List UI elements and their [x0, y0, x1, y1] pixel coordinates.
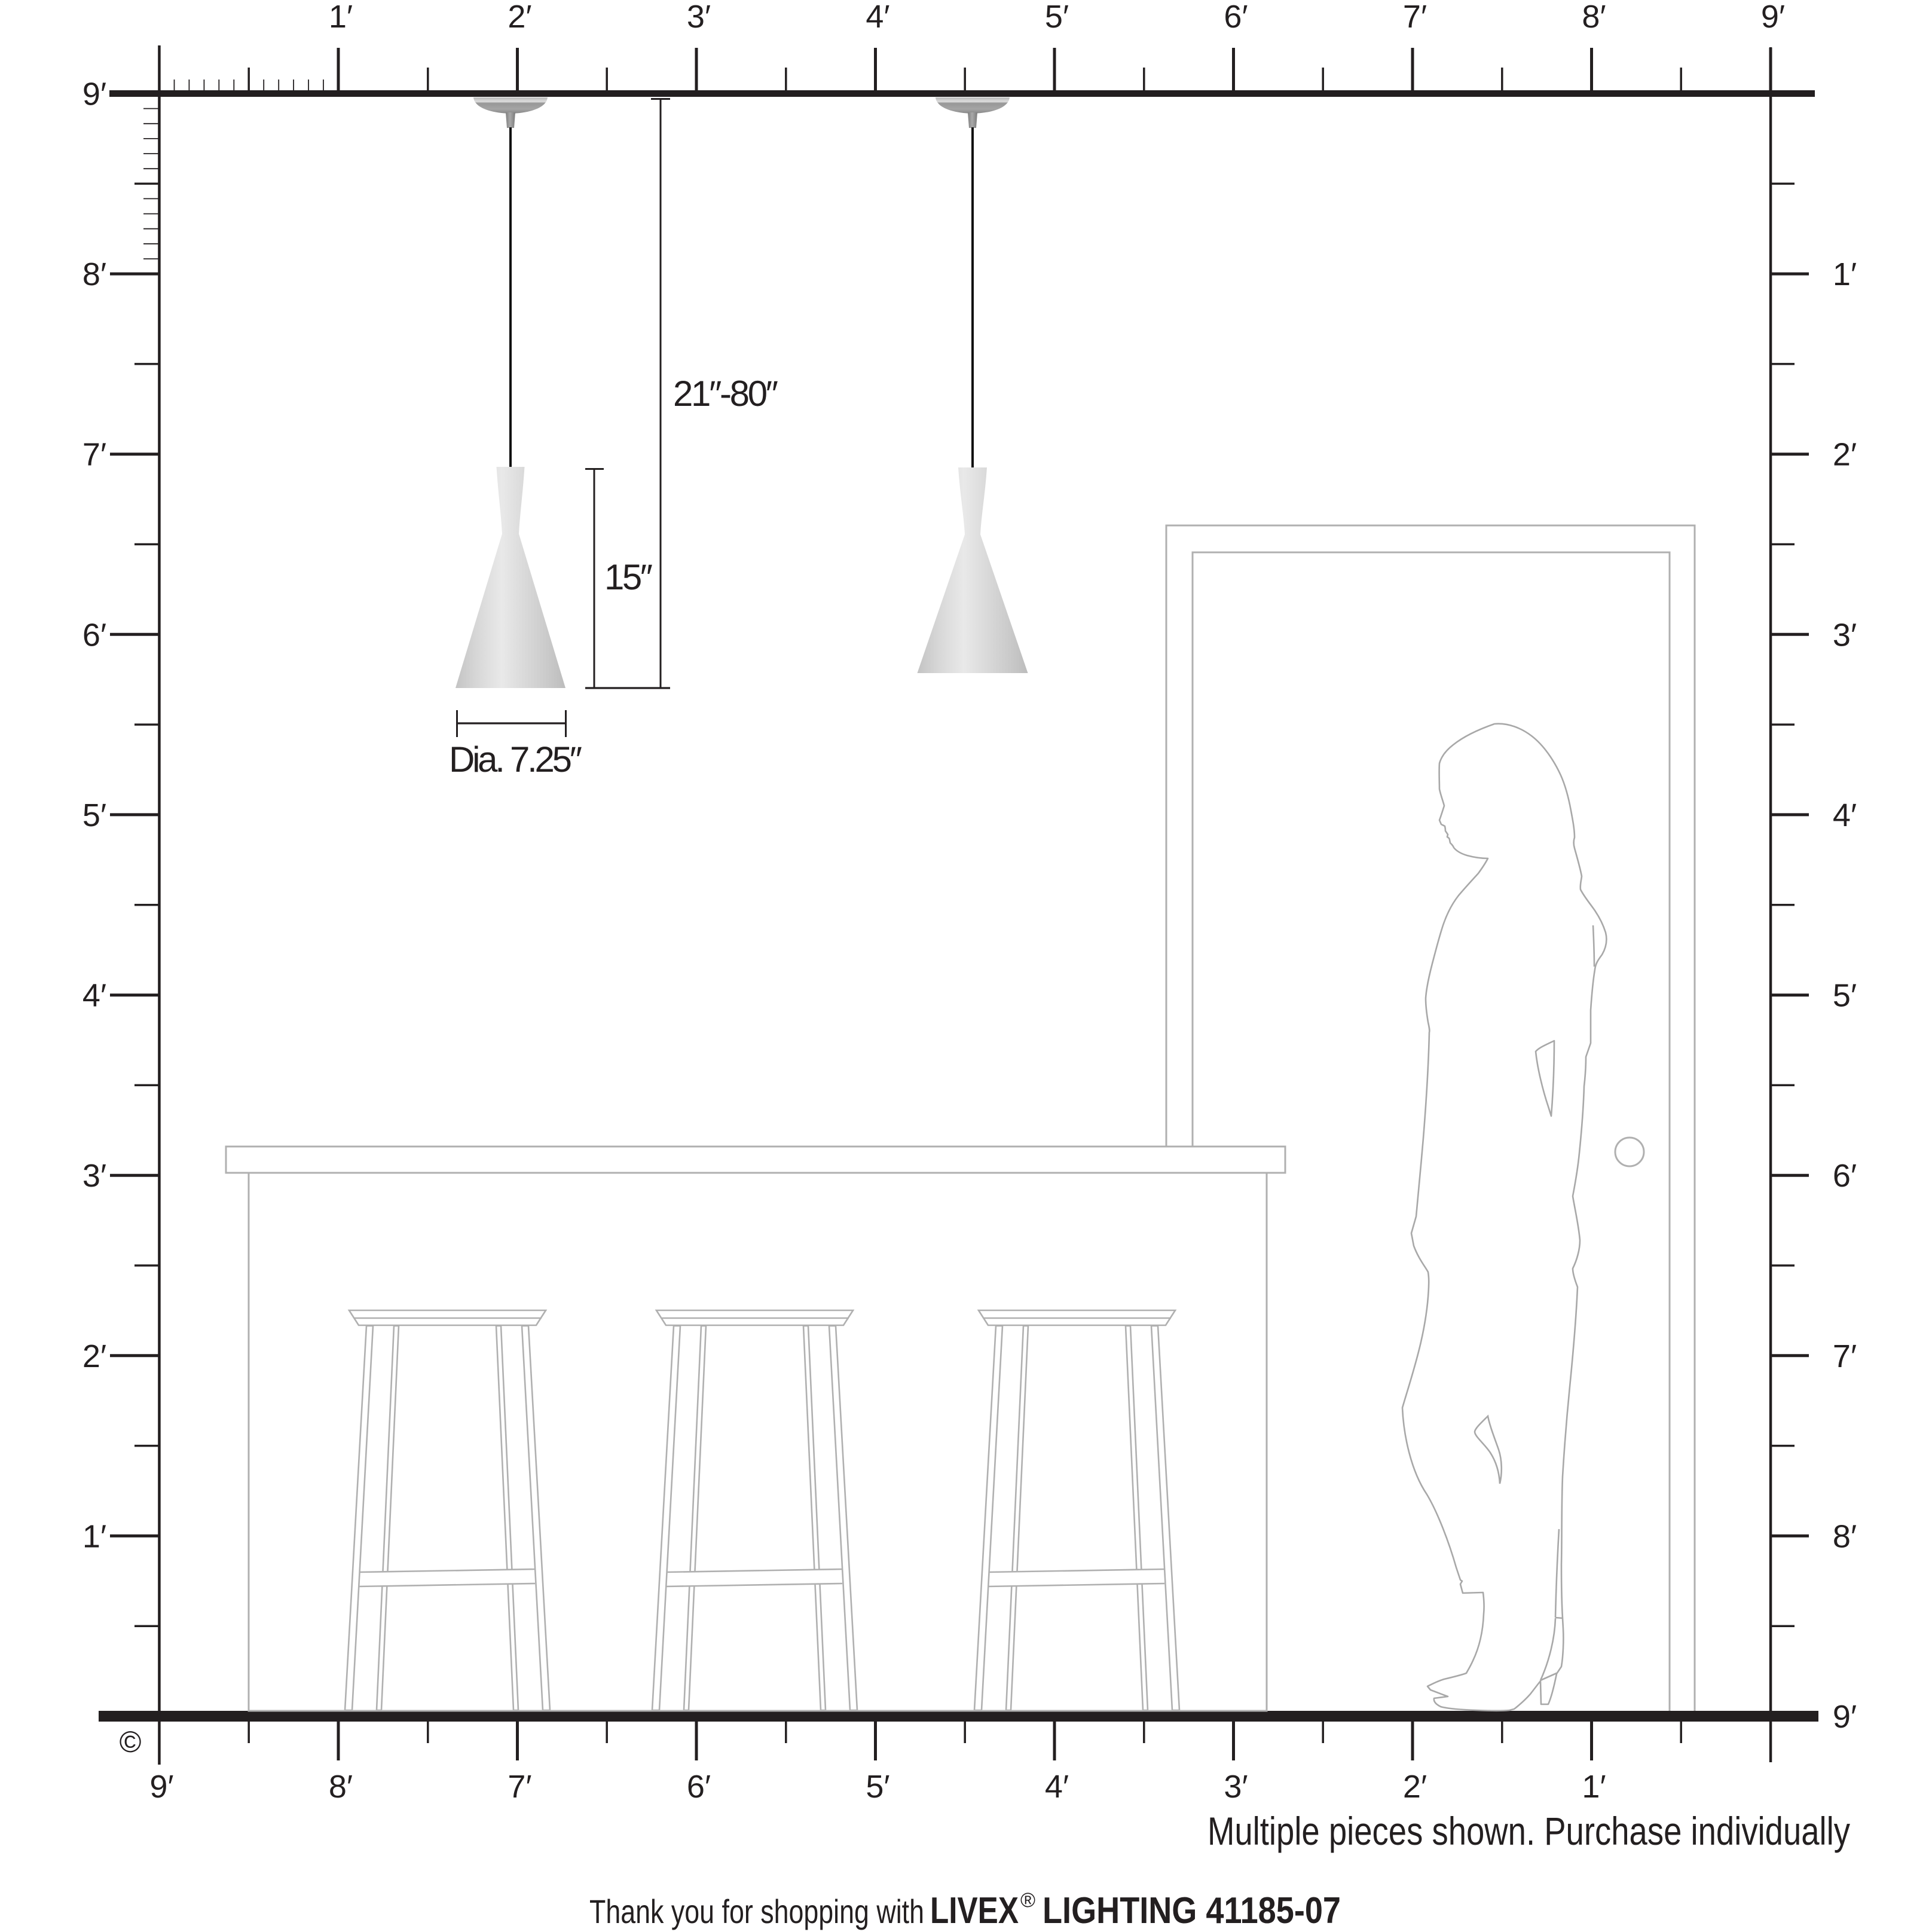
- svg-text:7′: 7′: [1833, 1338, 1857, 1374]
- svg-text:LIGHTING 41185-07: LIGHTING 41185-07: [1043, 1890, 1341, 1931]
- svg-text:5′: 5′: [1045, 0, 1069, 35]
- svg-text:©: ©: [120, 1725, 142, 1759]
- svg-text:1′: 1′: [1833, 256, 1857, 292]
- svg-text:®: ®: [1020, 1889, 1035, 1912]
- svg-text:21″-80″: 21″-80″: [673, 374, 778, 414]
- svg-text:3′: 3′: [1833, 617, 1857, 653]
- svg-text:9′: 9′: [1833, 1699, 1857, 1735]
- svg-text:6′: 6′: [1833, 1158, 1857, 1194]
- svg-text:3′: 3′: [687, 0, 711, 35]
- svg-text:LIVEX: LIVEX: [930, 1890, 1019, 1931]
- svg-text:5′: 5′: [82, 797, 106, 833]
- svg-text:2′: 2′: [508, 0, 531, 35]
- svg-text:4′: 4′: [866, 0, 889, 35]
- svg-text:Dia. 7.25″: Dia. 7.25″: [449, 739, 582, 779]
- svg-text:2′: 2′: [1403, 1769, 1427, 1805]
- svg-text:9′: 9′: [82, 77, 106, 112]
- svg-text:5′: 5′: [866, 1769, 889, 1805]
- svg-text:4′: 4′: [1045, 1769, 1069, 1805]
- svg-text:7′: 7′: [1403, 0, 1427, 35]
- svg-text:1′: 1′: [82, 1518, 106, 1554]
- svg-text:9′: 9′: [1761, 0, 1785, 35]
- svg-text:9′: 9′: [149, 1769, 173, 1805]
- svg-text:7′: 7′: [82, 437, 106, 473]
- svg-text:6′: 6′: [687, 1769, 711, 1805]
- svg-text:Thank you for shopping with: Thank you for shopping with: [589, 1893, 924, 1930]
- svg-text:1′: 1′: [329, 0, 353, 35]
- svg-text:6′: 6′: [1224, 0, 1248, 35]
- svg-text:3′: 3′: [82, 1158, 106, 1194]
- svg-text:3′: 3′: [1224, 1769, 1248, 1805]
- svg-text:4′: 4′: [1833, 797, 1857, 833]
- svg-text:7′: 7′: [508, 1769, 531, 1805]
- svg-text:5′: 5′: [1833, 978, 1857, 1014]
- svg-text:8′: 8′: [1582, 0, 1606, 35]
- svg-text:1′: 1′: [1582, 1769, 1606, 1805]
- svg-text:15″: 15″: [604, 557, 653, 597]
- svg-text:8′: 8′: [82, 256, 106, 292]
- svg-text:2′: 2′: [1833, 437, 1857, 473]
- svg-text:Multiple pieces shown. Purchas: Multiple pieces shown. Purchase individu…: [1207, 1809, 1850, 1853]
- svg-text:8′: 8′: [1833, 1518, 1857, 1554]
- svg-text:2′: 2′: [82, 1338, 106, 1374]
- svg-text:4′: 4′: [82, 978, 106, 1014]
- svg-text:8′: 8′: [329, 1769, 353, 1805]
- svg-text:6′: 6′: [82, 617, 106, 653]
